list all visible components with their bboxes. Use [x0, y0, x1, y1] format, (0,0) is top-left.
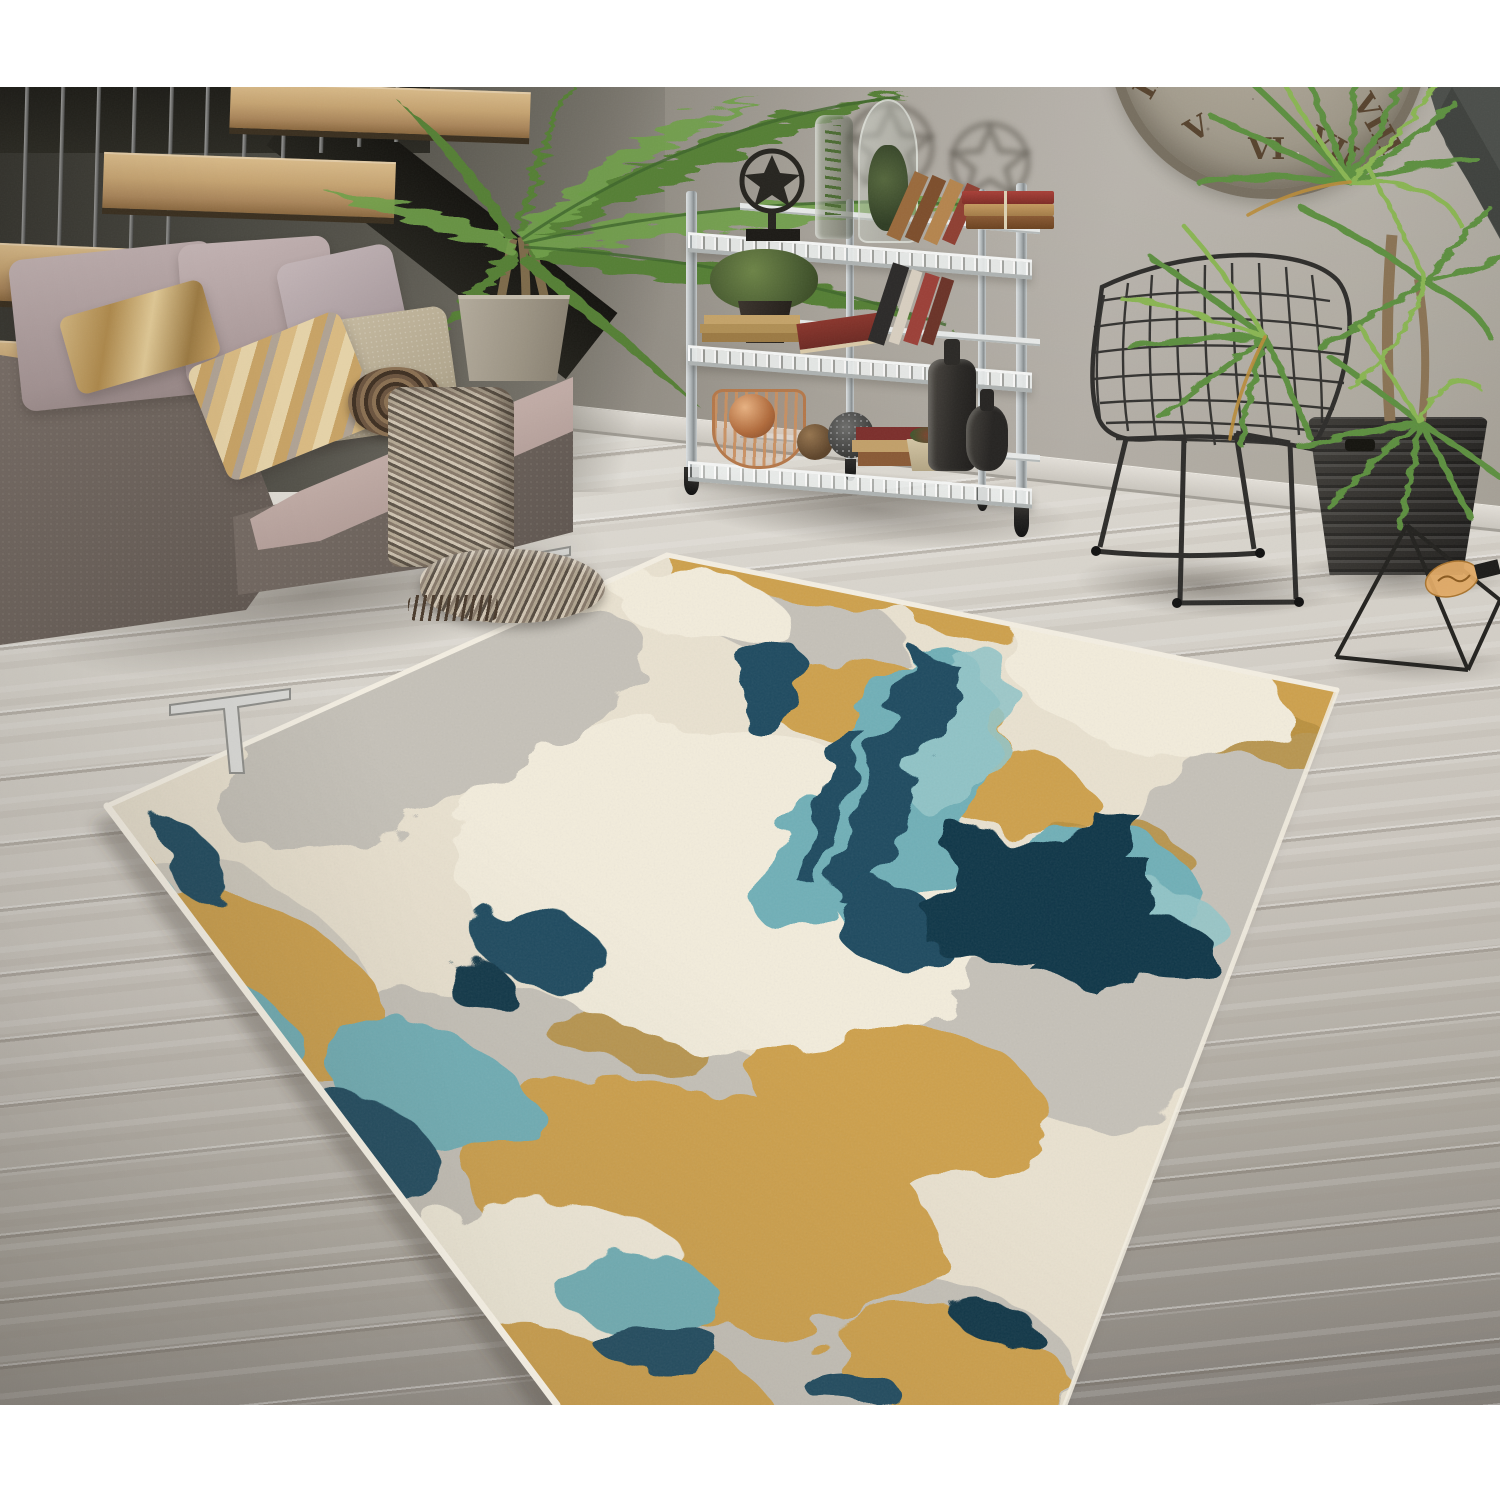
dracaena-leaves [1130, 87, 1500, 527]
book [964, 204, 1054, 216]
throw-fringe [408, 595, 498, 621]
bulb-socket [1474, 559, 1500, 579]
pyramid-lamp [1336, 525, 1500, 670]
concrete-planter [458, 295, 570, 381]
book [702, 333, 800, 342]
glass-cloche [858, 99, 918, 243]
bottle-neck [944, 339, 960, 365]
copper-wire-basket [712, 389, 806, 469]
dark-glass-bottle-small [966, 405, 1008, 471]
shelf-foot [1014, 507, 1029, 537]
room-photo: IIII V VI VII VIII [0, 87, 1500, 1405]
throw-blanket-drape [388, 387, 514, 567]
edison-bulb [1421, 555, 1500, 603]
book [704, 315, 800, 324]
book [962, 191, 1054, 204]
book [966, 216, 1054, 229]
bottle-stems [825, 125, 841, 215]
glass-bottle-with-stems [815, 115, 853, 239]
twine [1004, 191, 1007, 229]
tied-book-stack [962, 191, 1058, 231]
copper-ball [729, 394, 775, 438]
screenshot-canvas: IIII V VI VII VIII [0, 0, 1500, 1500]
star-wheel-ornament [726, 147, 818, 245]
bottle-neck [980, 389, 994, 411]
book [700, 324, 800, 333]
dracaena-and-lamp [1100, 87, 1500, 707]
book-stack-flat [700, 315, 802, 343]
sofa-front-leg [168, 685, 292, 777]
